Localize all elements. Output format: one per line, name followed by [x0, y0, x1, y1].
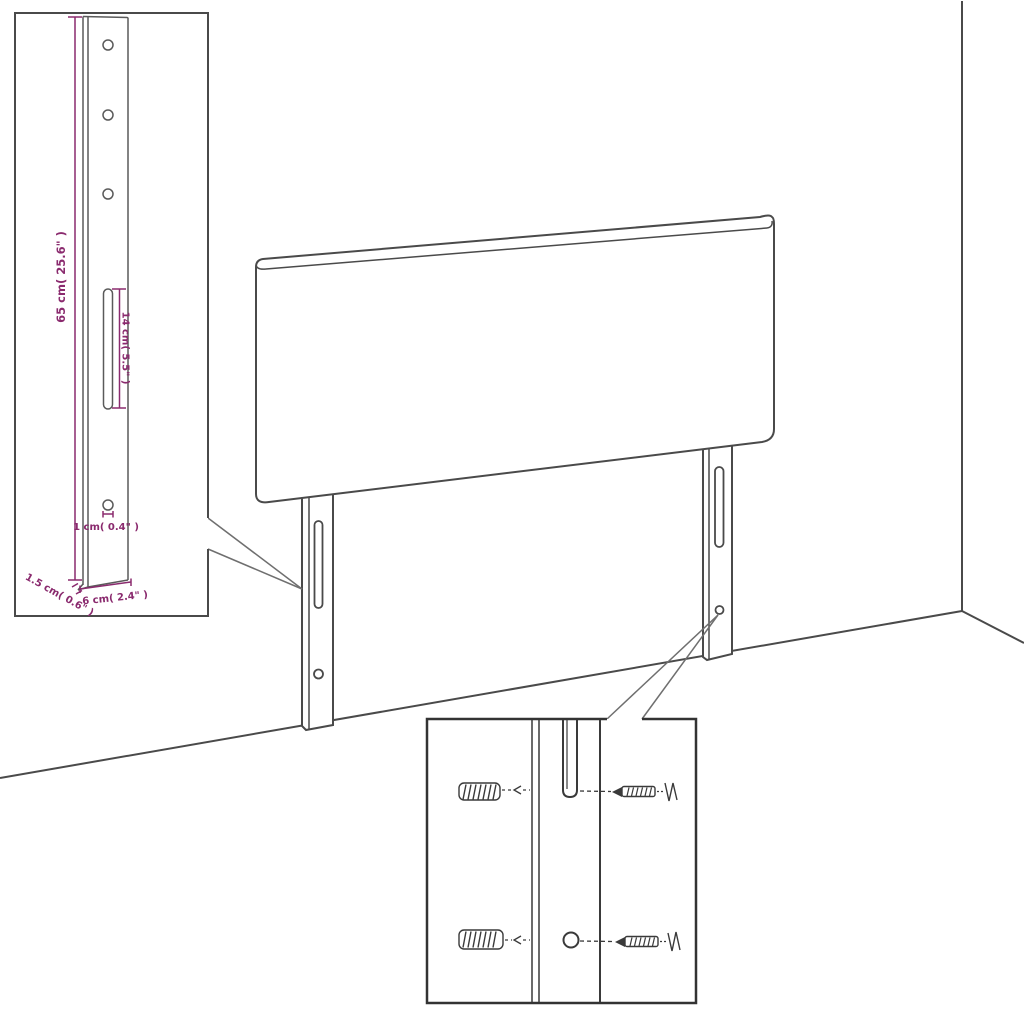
callout-lines	[208, 518, 718, 719]
bracket-hole-2	[103, 110, 113, 120]
bracket-top-edge	[83, 17, 128, 18]
dim-height-label: 65 cm( 25.6" )	[54, 231, 68, 323]
diagram-stage: 65 cm( 25.6" ) 14 cm( 5.5" ) 1 cm( 0.4" …	[0, 0, 1024, 1024]
diagram-canvas: 65 cm( 25.6" ) 14 cm( 5.5" ) 1 cm( 0.4" …	[0, 0, 1024, 1024]
callout-line-hole-inset-right	[642, 615, 718, 719]
bracket-bottom-hole	[103, 500, 113, 510]
bracket-hole-3	[103, 189, 113, 199]
left-leg-slot	[315, 521, 323, 608]
headboard-panel-outline	[256, 216, 774, 503]
detail-inset-mounting	[427, 719, 696, 1003]
bracket-slot	[104, 289, 113, 409]
right-leg-hole	[716, 606, 724, 614]
callout-line-inset-leg-upper	[208, 518, 302, 589]
headboard-panel	[256, 216, 774, 503]
dim-hole-label: 1 cm( 0.4" )	[73, 522, 139, 533]
dim-slot-label: 14 cm( 5.5" )	[120, 312, 131, 385]
callout-line-inset-leg-lower	[208, 549, 302, 589]
inset-mounting-fill	[427, 719, 696, 1003]
callout-line-hole-inset-left	[607, 615, 718, 719]
floor-line-right	[962, 611, 1024, 643]
wall-plug-bottom	[459, 930, 503, 949]
detail-inset-leg-bracket: 65 cm( 25.6" ) 14 cm( 5.5" ) 1 cm( 0.4" …	[15, 13, 208, 619]
left-leg	[302, 488, 333, 730]
right-leg-slot	[715, 467, 724, 547]
bracket-hole-1	[103, 40, 113, 50]
left-leg-hole	[314, 670, 323, 679]
right-leg	[703, 437, 732, 660]
wall-plug-top	[459, 783, 500, 800]
